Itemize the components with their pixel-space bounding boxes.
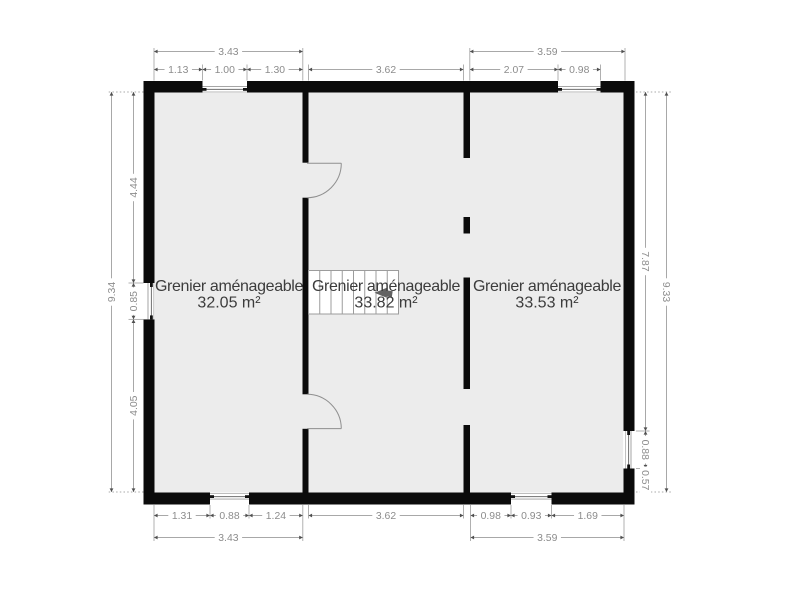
- svg-text:1.69: 1.69: [578, 511, 598, 522]
- svg-text:Grenier aménageable: Grenier aménageable: [473, 278, 622, 295]
- svg-text:4.05: 4.05: [129, 395, 140, 415]
- svg-text:32.05 m²: 32.05 m²: [197, 295, 261, 312]
- svg-text:Grenier aménageable: Grenier aménageable: [155, 278, 304, 295]
- svg-text:0.57: 0.57: [639, 470, 650, 490]
- svg-text:33.53 m²: 33.53 m²: [515, 295, 579, 312]
- svg-text:Grenier aménageable: Grenier aménageable: [312, 278, 461, 295]
- svg-text:0.93: 0.93: [521, 511, 541, 522]
- svg-text:4.44: 4.44: [129, 177, 140, 197]
- svg-text:1.31: 1.31: [172, 511, 192, 522]
- svg-text:0.88: 0.88: [219, 511, 239, 522]
- svg-text:2.07: 2.07: [504, 65, 524, 76]
- svg-text:3.43: 3.43: [218, 47, 238, 58]
- svg-text:7.87: 7.87: [639, 251, 650, 271]
- svg-text:0.98: 0.98: [569, 65, 589, 76]
- svg-text:0.88: 0.88: [639, 440, 650, 460]
- svg-text:3.43: 3.43: [218, 533, 238, 544]
- svg-text:0.98: 0.98: [481, 511, 501, 522]
- svg-text:33.82 m²: 33.82 m²: [354, 295, 418, 312]
- svg-text:1.24: 1.24: [266, 511, 286, 522]
- svg-text:3.59: 3.59: [537, 533, 557, 544]
- svg-text:0.85: 0.85: [129, 291, 140, 311]
- svg-text:9.33: 9.33: [660, 282, 671, 302]
- svg-text:1.00: 1.00: [215, 65, 235, 76]
- svg-text:1.13: 1.13: [168, 65, 188, 76]
- svg-text:9.34: 9.34: [107, 282, 118, 302]
- svg-text:1.30: 1.30: [265, 65, 285, 76]
- svg-text:3.62: 3.62: [376, 65, 396, 76]
- svg-text:3.62: 3.62: [376, 511, 396, 522]
- svg-text:3.59: 3.59: [537, 47, 557, 58]
